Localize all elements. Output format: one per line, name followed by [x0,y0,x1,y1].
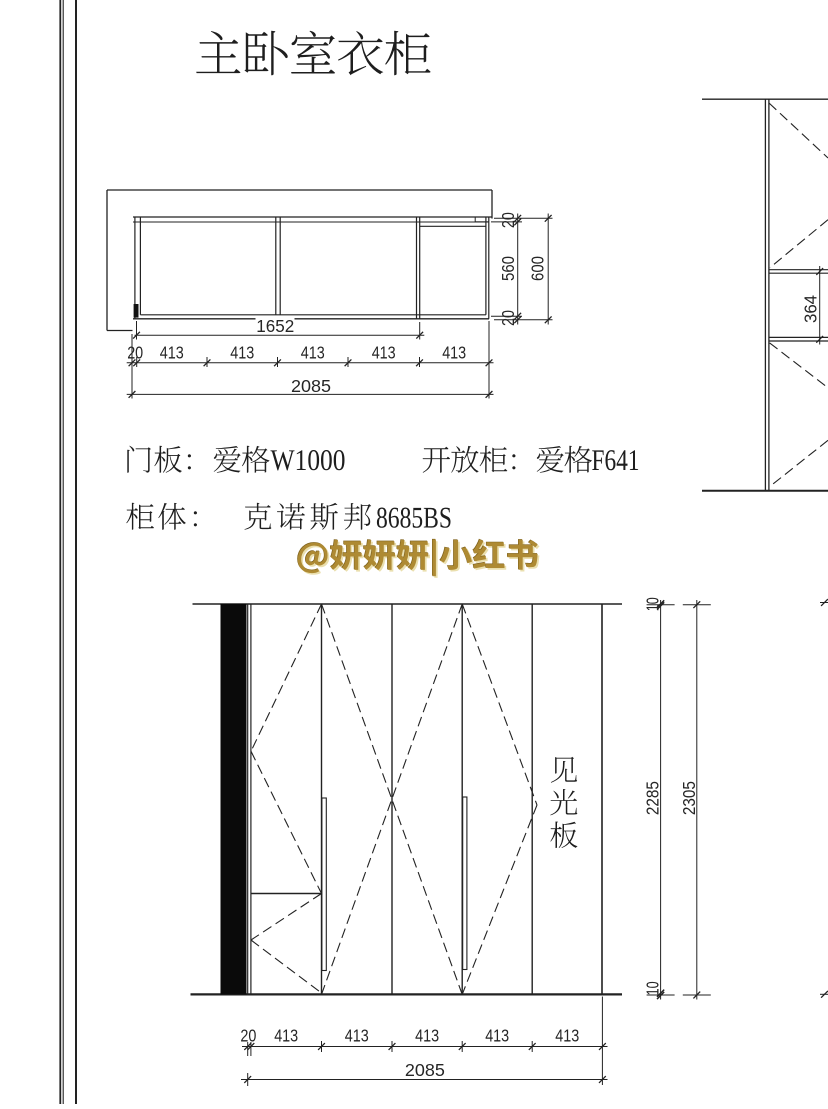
svg-text:560: 560 [498,256,518,281]
svg-text:20: 20 [498,212,518,228]
svg-text:10: 10 [643,981,663,995]
svg-text:413: 413 [555,1026,579,1046]
svg-text:364: 364 [801,295,821,323]
svg-text:413: 413 [345,1026,369,1046]
svg-text:2085: 2085 [291,376,331,396]
svg-text:600: 600 [528,256,548,281]
svg-text:413: 413 [301,343,325,363]
svg-text:413: 413 [442,343,466,363]
svg-text:10: 10 [643,597,663,611]
svg-text:413: 413 [160,343,184,363]
svg-text:2305: 2305 [679,781,699,815]
svg-text:413: 413 [415,1026,439,1046]
svg-text:1652: 1652 [256,316,294,336]
svg-text:413: 413 [485,1026,509,1046]
svg-text:2285: 2285 [643,781,663,815]
svg-text:20: 20 [127,343,143,363]
svg-text:20: 20 [498,310,518,326]
svg-text:413: 413 [372,343,396,363]
svg-text:413: 413 [230,343,254,363]
svg-text:2085: 2085 [405,1060,445,1080]
svg-text:413: 413 [274,1026,298,1046]
svg-text:20: 20 [240,1025,256,1045]
